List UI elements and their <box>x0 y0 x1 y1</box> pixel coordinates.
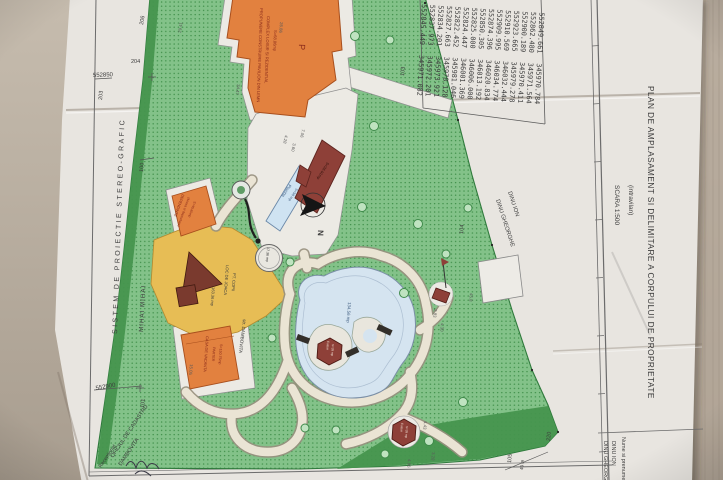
pavilion-label-3: S=68.86mp <box>272 30 278 52</box>
tree-icon <box>414 220 423 229</box>
fountain-circle <box>232 181 250 199</box>
tree-icon <box>386 36 394 44</box>
parcel-220: 220 <box>546 431 553 441</box>
tree-icon <box>400 289 409 298</box>
parcel-105: 105 <box>507 453 514 463</box>
plan-title: PLAN DE AMPLASAMENT SI DELIMITARE A CORP… <box>646 86 655 399</box>
owner-1: DINU ION <box>610 441 616 466</box>
dim-3-28: 3.28 <box>430 452 436 461</box>
pavilion-storey: P <box>297 44 307 50</box>
parcel-203: 203 <box>98 90 105 100</box>
grid-northing-552850: 552850 <box>93 72 114 79</box>
pond-island-notch <box>363 329 377 343</box>
foisor-island-label-1: Foisor <box>325 341 330 351</box>
north-label: N <box>316 230 325 236</box>
dim-26-86: 26.86 <box>278 22 284 34</box>
owner-2: DINU GHEORGHE <box>602 441 608 480</box>
photo-of-site-plan: 552845.449345971.082552837.973345972.201… <box>0 0 723 480</box>
dim-45-8: 45.8 <box>468 293 474 302</box>
foisor-south-label-1: Foisor <box>399 423 404 433</box>
dim-4-43: 4.43 <box>422 421 428 430</box>
stamp-box <box>478 255 523 303</box>
tree-icon <box>268 334 276 342</box>
parcel-103: 103 <box>400 66 407 76</box>
parcel-204: 204 <box>131 59 140 65</box>
parcel-101: 101 <box>140 398 147 408</box>
dim-4-96: 4.96 <box>406 459 412 468</box>
tree-icon <box>381 450 389 458</box>
site-plan-canvas: 552845.449345971.082552837.973345972.201… <box>0 0 723 480</box>
name-label: Nume si prenume: <box>620 437 626 480</box>
plan-subtitle: (intravilan) <box>627 185 634 215</box>
playground-house-annex <box>176 285 198 307</box>
tree-icon <box>464 204 472 212</box>
tree-icon <box>286 258 294 266</box>
tree-icon <box>358 203 367 212</box>
distance-40m: 40 m <box>519 459 525 470</box>
dim-2-83: 2.83 <box>432 309 438 318</box>
tree-icon <box>370 122 379 131</box>
tree-icon <box>425 437 434 446</box>
tree-icon <box>351 32 360 41</box>
tree-icon <box>301 424 309 432</box>
dim-4-30: 4.30 <box>439 323 445 332</box>
plan-scale: SCARA 1:500 <box>613 185 620 225</box>
tree-icon <box>442 250 450 258</box>
parcel-104: 104 <box>459 224 466 234</box>
parcel-100: 100 <box>139 162 146 172</box>
dim-15-05: 15.05 <box>188 364 194 376</box>
hedge-end <box>255 238 260 243</box>
tree-icon <box>332 426 340 434</box>
tree-icon <box>459 398 468 407</box>
